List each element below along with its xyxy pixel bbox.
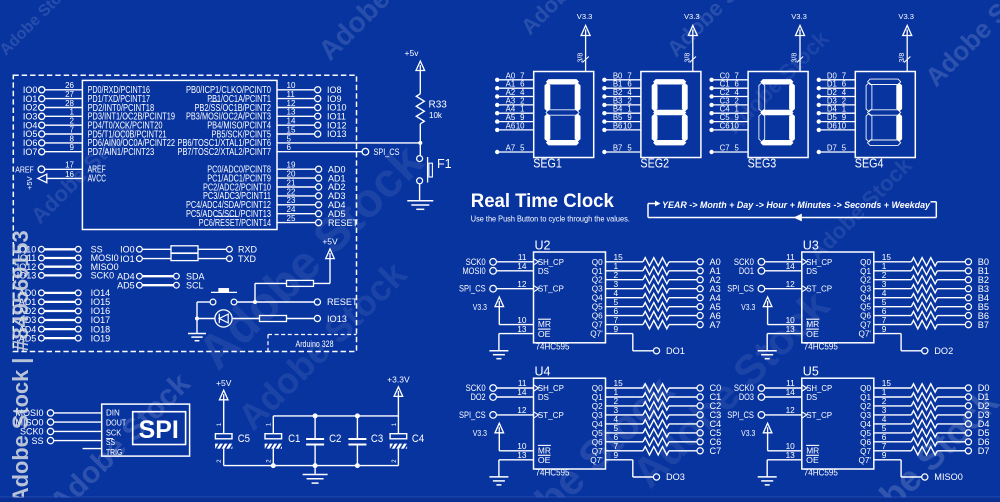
svg-text:V3.3: V3.3 (473, 302, 487, 312)
svg-text:PB7/TOSC2/XTAL2/PCINT7: PB7/TOSC2/XTAL2/PCINT7 (178, 147, 272, 158)
svg-text:SCK0: SCK0 (91, 271, 115, 281)
svg-text:C1: C1 (288, 433, 300, 445)
svg-text:1: 1 (70, 108, 75, 117)
svg-text:SEG3: SEG3 (748, 156, 777, 170)
svg-text:C4: C4 (412, 433, 424, 445)
svg-text:R33: R33 (429, 100, 448, 111)
svg-text:3/8: 3/8 (899, 53, 906, 63)
svg-text:IO7: IO7 (23, 147, 38, 157)
svg-text:19: 19 (287, 161, 296, 170)
svg-text:V3.3: V3.3 (577, 12, 593, 21)
svg-text:10: 10 (516, 121, 525, 130)
svg-text:SPI_CS: SPI_CS (459, 284, 486, 294)
svg-text:Adobe Stock | #849569153: Adobe Stock | #849569153 (8, 230, 33, 502)
svg-text:6: 6 (287, 143, 292, 152)
svg-text:DO1: DO1 (666, 346, 685, 356)
svg-text:C2: C2 (329, 433, 341, 445)
svg-text:Use the Push Button to cycle t: Use the Push Button to cycle through the… (471, 214, 630, 224)
svg-text:V3.3: V3.3 (473, 428, 487, 438)
svg-text:12: 12 (517, 405, 527, 415)
svg-text:14: 14 (786, 387, 796, 397)
svg-text:A7: A7 (506, 144, 516, 153)
svg-text:U2: U2 (535, 239, 551, 253)
svg-text:10: 10 (623, 121, 632, 130)
svg-text:MOSI0: MOSI0 (463, 266, 486, 276)
svg-text:SEG1: SEG1 (533, 156, 562, 170)
svg-text:15: 15 (287, 125, 296, 134)
svg-text:V3.3: V3.3 (741, 302, 755, 312)
svg-text:C7: C7 (720, 144, 730, 153)
svg-text:DS: DS (538, 392, 549, 402)
svg-text:13: 13 (517, 450, 527, 460)
svg-text:DO2: DO2 (471, 392, 486, 402)
svg-text:D7: D7 (978, 446, 990, 456)
svg-text:IO13: IO13 (327, 129, 347, 139)
svg-text:25: 25 (287, 214, 296, 223)
svg-text:9: 9 (882, 324, 887, 334)
svg-text:8: 8 (70, 134, 75, 143)
svg-text:+3.3V: +3.3V (387, 375, 410, 385)
svg-text:11: 11 (287, 90, 296, 99)
svg-text:SS: SS (31, 436, 43, 446)
svg-text:27: 27 (65, 90, 74, 99)
svg-text:74HC595: 74HC595 (536, 342, 570, 352)
svg-text:AD5: AD5 (117, 280, 135, 290)
svg-text:D7: D7 (827, 144, 837, 153)
svg-text:ST_CP: ST_CP (806, 410, 832, 420)
svg-text:+5v: +5v (405, 48, 420, 58)
svg-text:5: 5 (287, 134, 292, 143)
svg-text:21: 21 (287, 178, 296, 187)
svg-text:YEAR -> Month + Day -> Hour +: YEAR -> Month + Day -> Hour + Minutes ->… (662, 199, 931, 210)
svg-text:DS: DS (538, 266, 549, 276)
svg-text:MR: MR (538, 445, 551, 455)
svg-text:C7: C7 (710, 446, 722, 456)
svg-text:ST_CP: ST_CP (538, 284, 564, 294)
svg-text:SCL: SCL (186, 280, 204, 290)
svg-text:B6: B6 (613, 121, 623, 130)
svg-text:DS: DS (806, 266, 817, 276)
svg-text:3/8: 3/8 (577, 53, 584, 63)
svg-text:IO1: IO1 (120, 254, 135, 264)
svg-text:B7: B7 (978, 320, 989, 330)
svg-text:13: 13 (786, 450, 796, 460)
svg-text:5: 5 (735, 144, 740, 153)
svg-text:MR: MR (538, 319, 551, 329)
svg-text:9: 9 (70, 143, 75, 152)
svg-text:2: 2 (70, 117, 75, 126)
svg-text:28: 28 (65, 99, 74, 108)
svg-text:MR: MR (806, 445, 819, 455)
svg-text:14: 14 (517, 387, 527, 397)
svg-text:PC6/RESET/PCINT14: PC6/RESET/PCINT14 (199, 218, 272, 229)
svg-text:U5: U5 (803, 365, 819, 379)
svg-text:V3.3: V3.3 (791, 12, 807, 21)
svg-text:Q7': Q7' (859, 329, 872, 339)
svg-text:DS: DS (806, 392, 817, 402)
svg-text:U4: U4 (535, 365, 551, 379)
svg-text:SEG4: SEG4 (855, 156, 884, 170)
svg-text:+5V: +5V (216, 378, 232, 388)
svg-text:10: 10 (837, 121, 846, 130)
svg-text:9: 9 (614, 324, 619, 334)
svg-text:C5: C5 (238, 433, 250, 445)
svg-text:C3: C3 (371, 433, 383, 445)
svg-text:+5V: +5V (25, 175, 34, 190)
svg-text:14: 14 (287, 117, 296, 126)
svg-text:OE: OE (806, 455, 819, 465)
svg-text:10: 10 (287, 81, 296, 90)
svg-text:13: 13 (287, 108, 296, 117)
svg-text:DO1: DO1 (739, 266, 754, 276)
svg-text:26: 26 (65, 81, 74, 90)
svg-text:IO19: IO19 (91, 333, 111, 343)
svg-text:OE: OE (538, 329, 551, 339)
svg-text:24: 24 (287, 205, 296, 214)
svg-text:7: 7 (70, 125, 75, 134)
svg-text:TXD: TXD (238, 254, 257, 264)
svg-text:OE: OE (538, 455, 551, 465)
svg-text:14: 14 (786, 261, 796, 271)
svg-text:SPI_CS: SPI_CS (459, 410, 486, 420)
svg-text:DO2: DO2 (934, 346, 953, 356)
svg-text:A7: A7 (710, 320, 721, 330)
svg-text:22: 22 (287, 187, 296, 196)
svg-text:12: 12 (786, 279, 796, 289)
svg-text:D6: D6 (827, 121, 837, 130)
svg-text:20: 20 (287, 170, 296, 179)
svg-text:F1: F1 (437, 157, 452, 171)
svg-text:B7: B7 (613, 144, 623, 153)
svg-text:V3.3: V3.3 (741, 428, 755, 438)
svg-text:AREF: AREF (15, 164, 34, 174)
svg-text:SPI_CS: SPI_CS (727, 284, 754, 294)
svg-text:DIN: DIN (106, 409, 120, 418)
svg-text:Real Time Clock: Real Time Clock (471, 190, 614, 212)
svg-text:5: 5 (627, 144, 632, 153)
svg-text:Q7': Q7' (590, 329, 603, 339)
svg-text:Q7': Q7' (859, 455, 872, 465)
svg-text:ST_CP: ST_CP (538, 410, 564, 420)
svg-text:SEG2: SEG2 (640, 156, 669, 170)
svg-text:13: 13 (517, 324, 527, 334)
svg-text:5: 5 (520, 144, 525, 153)
svg-text:A6: A6 (506, 121, 516, 130)
svg-text:12: 12 (786, 405, 796, 415)
svg-text:23: 23 (287, 196, 296, 205)
svg-text:14: 14 (517, 261, 527, 271)
svg-text:V3.3: V3.3 (898, 12, 914, 21)
svg-text:10k: 10k (429, 111, 443, 120)
svg-text:12: 12 (517, 279, 527, 289)
svg-text:12: 12 (287, 99, 296, 108)
svg-text:5: 5 (842, 144, 847, 153)
svg-text:74HC595: 74HC595 (804, 468, 838, 478)
svg-text:9: 9 (882, 450, 887, 460)
